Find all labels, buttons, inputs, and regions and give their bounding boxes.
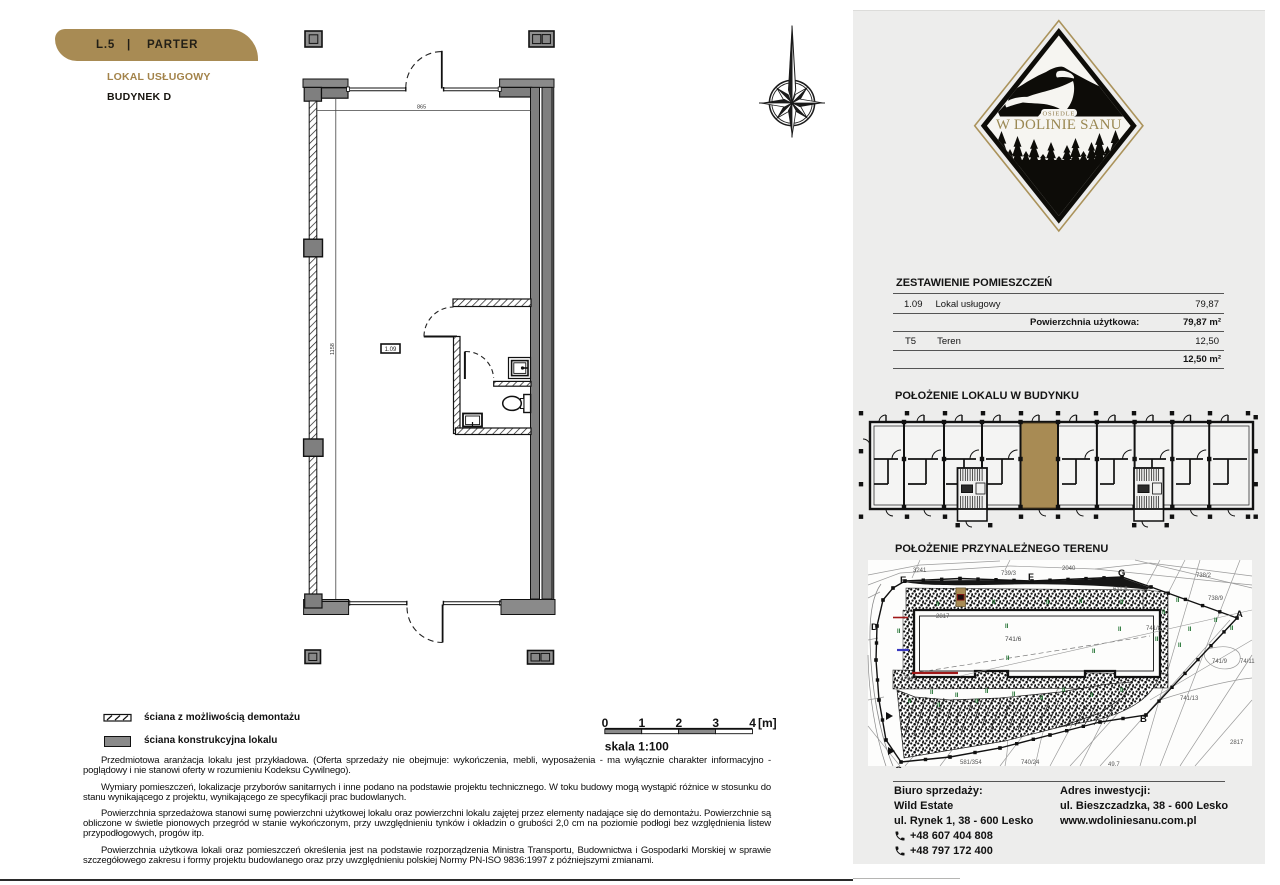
svg-text:II: II (1120, 600, 1124, 606)
svg-text:3241: 3241 (913, 568, 927, 574)
svg-text:865: 865 (417, 105, 426, 111)
svg-text:II: II (1162, 610, 1166, 616)
svg-text:581/354: 581/354 (960, 760, 982, 766)
svg-text:741/9: 741/9 (1212, 659, 1228, 665)
svg-text:II: II (908, 699, 912, 705)
svg-text:II: II (975, 699, 979, 705)
svg-text:741/13: 741/13 (1180, 696, 1199, 702)
svg-text:49.7: 49.7 (1108, 762, 1120, 768)
svg-text:II: II (1178, 643, 1182, 649)
svg-text:G: G (1118, 568, 1125, 579)
svg-text:II: II (1120, 688, 1124, 694)
svg-text:74/11: 74/11 (1240, 659, 1255, 665)
svg-text:II: II (1155, 637, 1159, 643)
svg-text:skala 1:100: skala 1:100 (605, 740, 669, 754)
svg-text:611.5: 611.5 (1113, 587, 1128, 593)
svg-text:II: II (937, 703, 941, 709)
svg-text:C: C (895, 765, 902, 768)
svg-text:II: II (1176, 598, 1180, 604)
svg-text:2817: 2817 (1230, 740, 1244, 746)
svg-text:II: II (1092, 649, 1096, 655)
svg-text:II: II (985, 689, 989, 695)
svg-text:A: A (1236, 609, 1243, 620)
svg-text:738/9: 738/9 (1208, 596, 1224, 602)
svg-text:II: II (1118, 627, 1122, 633)
svg-text:B: B (1140, 714, 1147, 725)
svg-text:II: II (936, 602, 940, 608)
svg-text:[m]: [m] (758, 716, 777, 730)
svg-text:II: II (1040, 696, 1044, 702)
svg-text:II: II (897, 629, 901, 635)
svg-text:II: II (1062, 688, 1066, 694)
svg-text:2817: 2817 (936, 614, 950, 620)
svg-text:1158: 1158 (330, 343, 336, 355)
svg-text:740/24: 740/24 (1021, 760, 1040, 766)
svg-text:37047: 37047 (900, 676, 917, 682)
svg-text:D: D (871, 622, 878, 633)
svg-text:W DOLINIE SANU: W DOLINIE SANU (996, 117, 1122, 133)
svg-text:741/8: 741/8 (1146, 626, 1162, 632)
svg-text:II: II (930, 690, 934, 696)
svg-text:II: II (1230, 626, 1234, 632)
svg-text:II: II (1214, 618, 1218, 624)
svg-text:2040: 2040 (1062, 566, 1076, 572)
svg-text:II: II (1012, 692, 1016, 698)
svg-text:II: II (1046, 600, 1050, 606)
svg-text:F: F (1028, 572, 1034, 583)
svg-text:1.09: 1.09 (385, 347, 397, 353)
svg-text:738/2: 738/2 (1196, 573, 1212, 579)
svg-text:II: II (1090, 693, 1094, 699)
svg-text:II: II (955, 693, 959, 699)
svg-text:E: E (900, 575, 906, 586)
svg-text:II: II (1006, 656, 1010, 662)
svg-text:741/6: 741/6 (1005, 636, 1022, 643)
svg-text:II: II (992, 600, 996, 606)
svg-text:II: II (1005, 624, 1009, 630)
svg-text:II: II (1188, 627, 1192, 633)
svg-text:739/3: 739/3 (1001, 571, 1017, 577)
svg-text:II: II (1079, 599, 1083, 605)
